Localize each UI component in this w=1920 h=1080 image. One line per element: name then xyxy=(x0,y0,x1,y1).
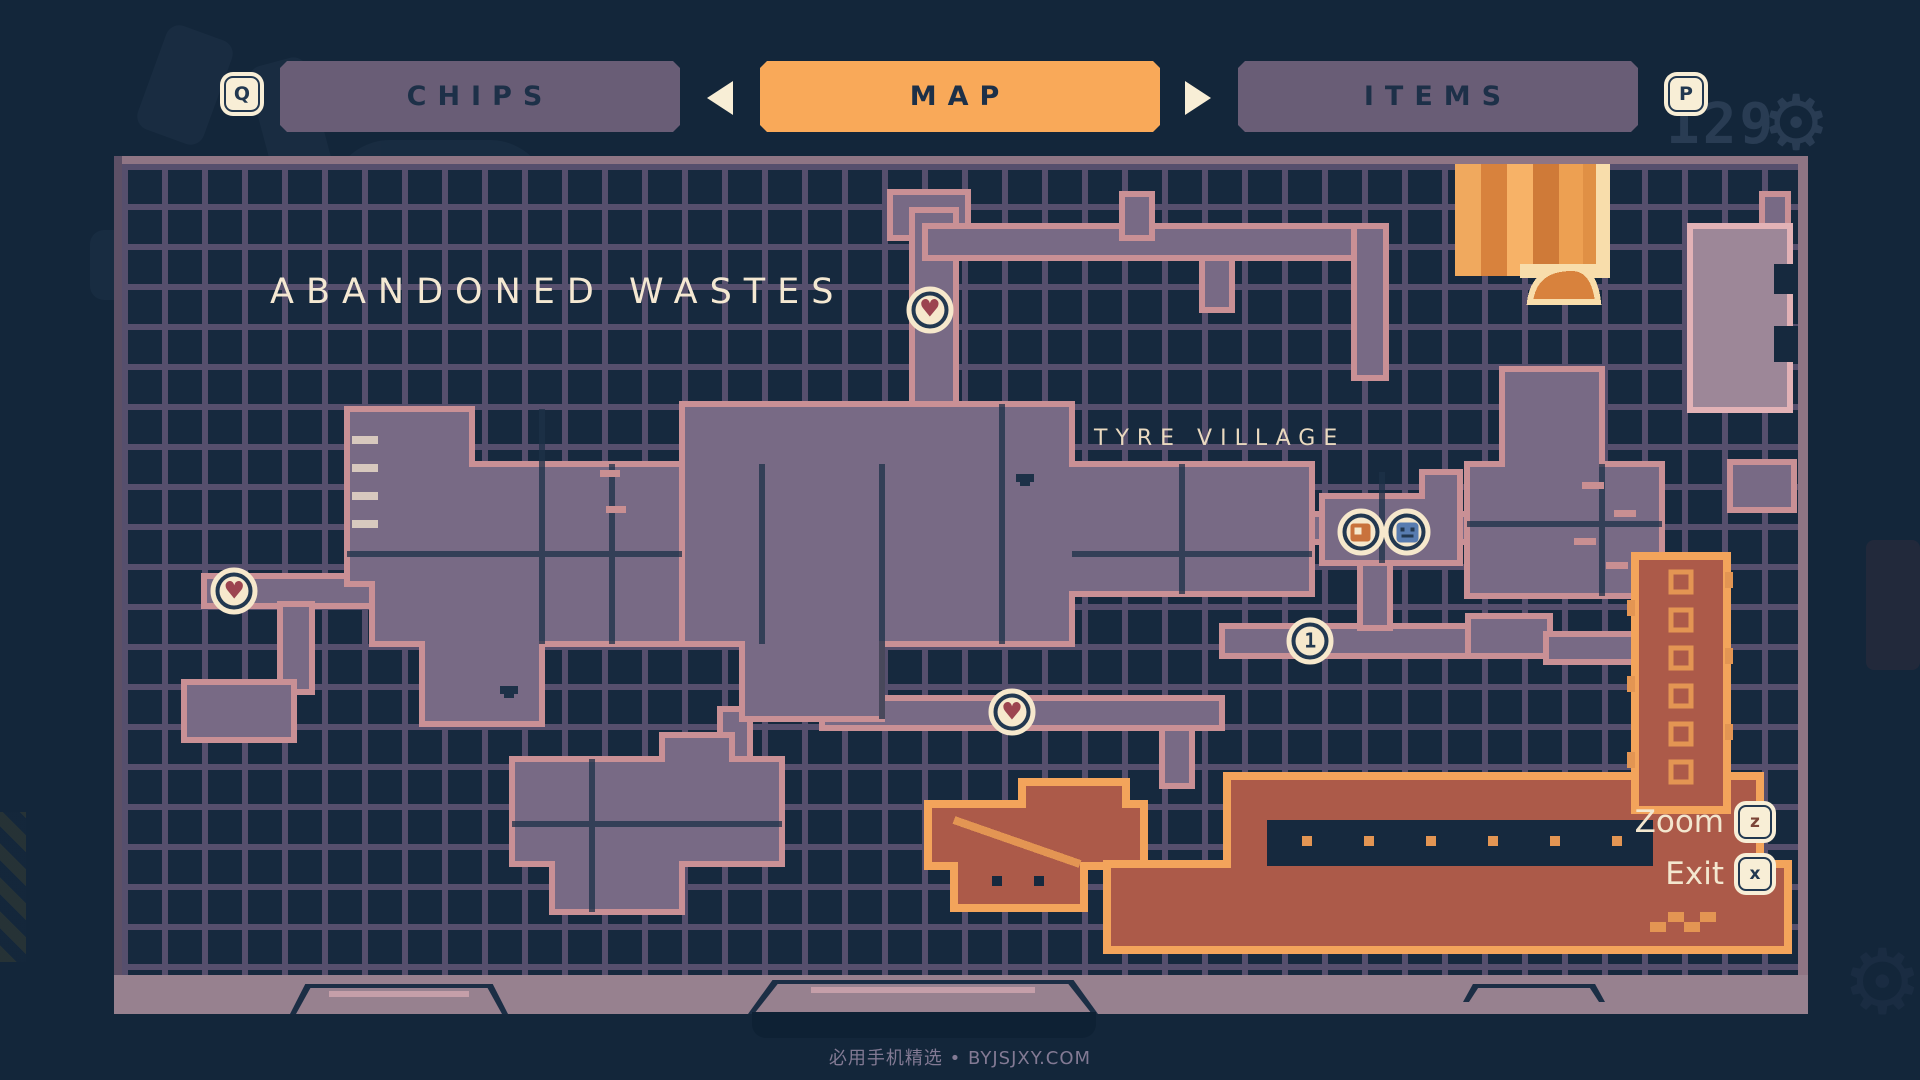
exit-control[interactable]: Exit x xyxy=(1665,856,1772,892)
zoom-key-hint: z xyxy=(1738,805,1772,839)
map-marker-health-station-top: ♥ xyxy=(906,286,953,333)
map-screen: ABANDONED WASTES TYRE VILLAGE ♥♥♥1 Zoom … xyxy=(122,164,1798,975)
next-tab-arrow-icon[interactable] xyxy=(1185,81,1211,115)
region-title: ABANDONED WASTES xyxy=(270,272,846,312)
background-pipe-decoration xyxy=(1866,540,1920,670)
background-gear-icon: ⚙ xyxy=(1842,930,1920,1035)
exit-key-hint: x xyxy=(1738,857,1772,891)
watermark-text: 必用手机精选 • BYJSJXY.COM xyxy=(0,1044,1920,1070)
zoom-label: Zoom xyxy=(1635,804,1724,840)
tab-items[interactable]: ITEMS xyxy=(1238,61,1638,132)
device-stand xyxy=(752,1012,1096,1038)
heart-icon: ♥ xyxy=(1001,699,1023,723)
bezel-foot xyxy=(1463,984,1605,1002)
scrap-gear-icon: ⚙ xyxy=(1762,78,1830,167)
shop-icon xyxy=(1351,523,1371,541)
heart-icon: ♥ xyxy=(224,578,246,602)
hazard-stripe-decoration xyxy=(0,812,26,962)
next-tab-key-hint: P xyxy=(1668,76,1704,112)
bezel-foot xyxy=(290,984,508,1014)
map-frame-right xyxy=(1798,156,1808,1014)
prev-tab-key-hint: Q xyxy=(224,76,260,112)
map-controls: Zoom z Exit x xyxy=(1635,804,1772,892)
tab-map[interactable]: MAP xyxy=(760,61,1160,132)
save-robot-icon xyxy=(1396,522,1418,542)
map-frame-top xyxy=(114,156,1806,164)
prev-tab-arrow-icon[interactable] xyxy=(707,81,733,115)
map-marker-numbered-station: 1 xyxy=(1287,617,1334,664)
map-marker-health-station-mid: ♥ xyxy=(988,689,1035,736)
map-frame-left xyxy=(114,156,122,1014)
area-label: TYRE VILLAGE xyxy=(1094,426,1345,451)
numbered-marker-icon: 1 xyxy=(1304,629,1316,653)
zoom-control[interactable]: Zoom z xyxy=(1635,804,1772,840)
exit-label: Exit xyxy=(1665,856,1724,892)
map-marker-health-station-left: ♥ xyxy=(211,568,258,615)
map-marker-save-station xyxy=(1384,509,1431,556)
tab-chips[interactable]: CHIPS xyxy=(280,61,680,132)
map-marker-shop-station xyxy=(1337,509,1384,556)
heart-icon: ♥ xyxy=(919,297,941,321)
bezel-foot xyxy=(748,980,1098,1014)
